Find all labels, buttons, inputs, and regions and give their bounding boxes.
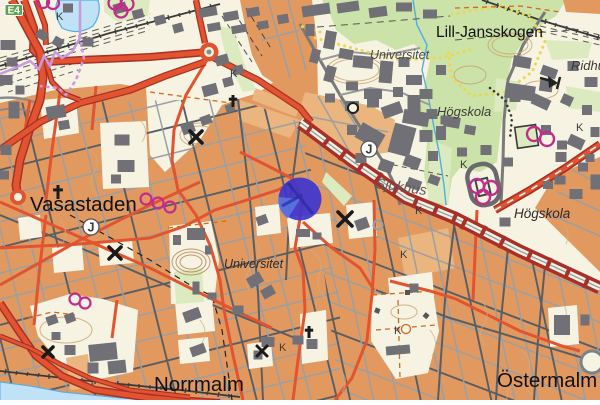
svg-text:Östermalm: Östermalm (497, 369, 597, 392)
svg-text:K: K (56, 11, 64, 23)
svg-text:K: K (400, 249, 408, 261)
svg-text:Universitet: Universitet (224, 257, 284, 271)
svg-text:Norrmalm: Norrmalm (154, 373, 244, 396)
svg-text:K: K (460, 159, 468, 171)
svg-text:J: J (88, 221, 95, 235)
svg-text:K: K (394, 325, 402, 337)
svg-text:K: K (279, 342, 287, 354)
svg-text:E4: E4 (8, 6, 21, 17)
svg-text:J: J (366, 143, 373, 157)
svg-text:Högskola: Högskola (514, 206, 571, 221)
svg-text:K: K (415, 205, 423, 217)
svg-text:Ridhus: Ridhus (571, 58, 600, 73)
svg-text:Vasastaden: Vasastaden (30, 193, 137, 216)
svg-text:K: K (576, 122, 584, 134)
svg-text:Universitet: Universitet (370, 48, 430, 62)
svg-text:Högskola: Högskola (437, 104, 491, 119)
svg-text:K: K (230, 68, 238, 80)
svg-text:Lill-Jansskogen: Lill-Jansskogen (436, 24, 543, 41)
